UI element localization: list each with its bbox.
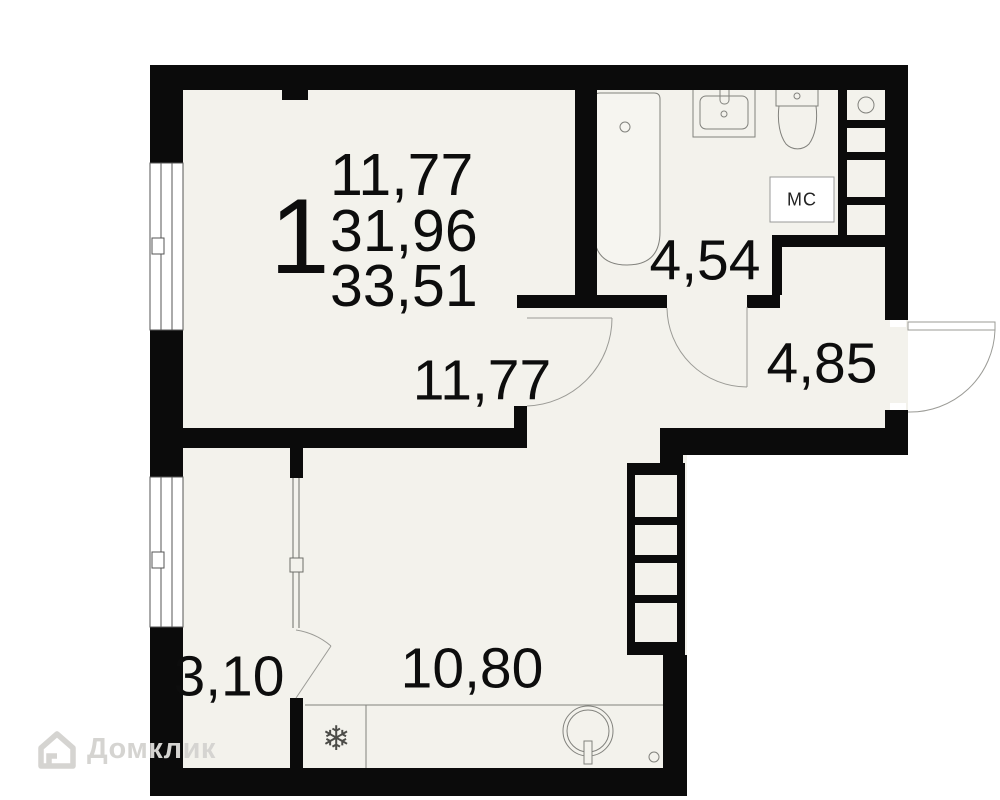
kitchen-tap-icon: [584, 741, 592, 764]
bathroom-area-label: 4,54: [650, 233, 761, 290]
washing-machine-label: МС: [787, 190, 817, 211]
wall-shaft-divider: [838, 90, 847, 235]
wall-livingroom-bottom: [150, 428, 527, 448]
wall-pilaster: [282, 90, 308, 100]
shaft-separator: [847, 120, 885, 128]
area-line-1: 11,77: [330, 146, 473, 205]
shaft-separator: [847, 197, 885, 205]
living-room-area-label: 11,77: [413, 353, 551, 410]
wall-bath-bottom-left: [517, 295, 667, 308]
wall-kitchen-right: [663, 655, 687, 768]
wall-hall-bottom: [660, 428, 908, 455]
wall-balcony-partition-bottom: [290, 698, 303, 770]
apartment-number: 1: [270, 183, 330, 290]
wall-balcony-partition-top: [290, 428, 303, 478]
wall-bottom: [150, 768, 687, 796]
wall-bath-bottom-right: [747, 295, 780, 308]
shaft-separator: [847, 152, 885, 160]
window-balcony: [150, 477, 183, 627]
wall-left-middle: [150, 330, 183, 477]
floor-plan: 1 11,77 31,96 33,51 11,77 4,54 4,85 3,10…: [0, 0, 1000, 800]
domklik-house-icon: [35, 728, 79, 770]
wall-left-upper: [150, 90, 183, 163]
hallway-area-label: 4,85: [767, 336, 878, 393]
wall-right-upper: [885, 90, 908, 320]
window-living: [150, 163, 183, 330]
wall-niche-horizontal: [772, 235, 890, 247]
watermark: Домклик: [35, 728, 216, 770]
wall-top: [150, 65, 908, 90]
balcony-area-label: 3,10: [174, 649, 285, 706]
wall-hall-bottom-stub: [660, 428, 683, 463]
kitchen-area-label: 10,80: [401, 641, 544, 698]
fridge-icon: ❄: [322, 719, 351, 759]
watermark-brand: Домклик: [87, 733, 216, 766]
wall-living-bath-divider: [575, 90, 597, 295]
wall-niche-vertical: [772, 247, 782, 295]
area-line-3: 33,51: [330, 257, 478, 316]
